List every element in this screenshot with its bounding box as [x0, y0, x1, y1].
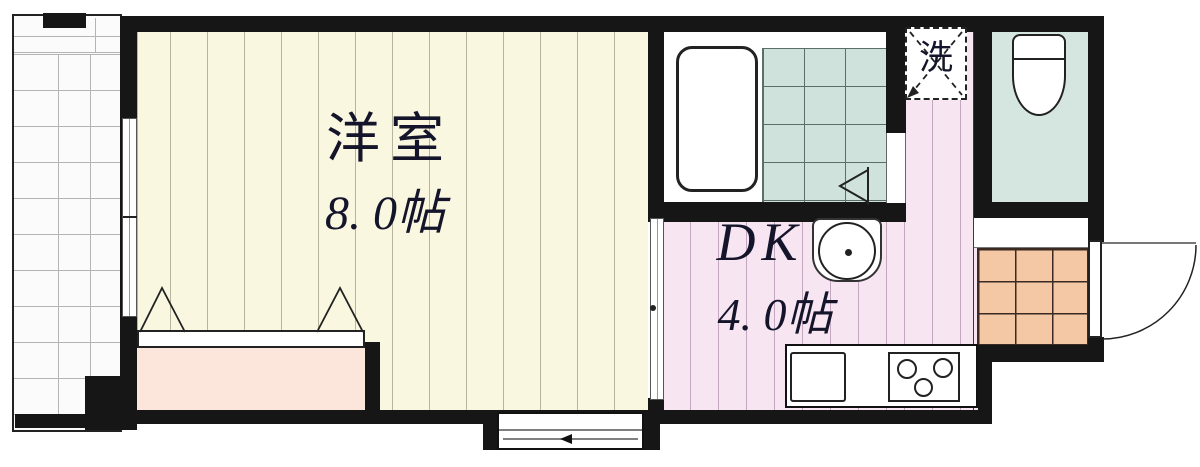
wall-closet-stub	[365, 342, 380, 412]
wall	[15, 414, 90, 428]
floorplan: 洋室 8. 0帖 DK 4. 0帖 洗	[0, 0, 1200, 467]
wall-room-divider	[648, 30, 664, 220]
stove	[888, 352, 960, 402]
burner-icon	[897, 359, 917, 379]
entrance-door-swing	[1102, 243, 1196, 339]
bathtub	[676, 46, 758, 192]
closet-front	[137, 330, 365, 348]
wall-genkan	[978, 345, 1104, 362]
wall-bathroom	[886, 16, 906, 133]
burner-icon	[933, 358, 953, 378]
western-room-label: 洋室	[300, 112, 480, 166]
bathroom-tile-area	[762, 48, 886, 202]
dk-label: DK	[700, 215, 820, 269]
wall-bottom	[120, 410, 497, 424]
south-window	[497, 412, 644, 450]
balcony-window	[122, 118, 137, 317]
kitchen-sink	[790, 352, 846, 402]
bathroom-door-opening	[886, 133, 906, 203]
balcony-edge-divider	[95, 18, 96, 52]
dk-size: 4. 0帖	[690, 292, 860, 338]
toilet-tank	[1012, 34, 1066, 60]
washer-space-label: 洗	[905, 42, 967, 76]
wall	[43, 13, 86, 28]
entrance-door-leaf	[1088, 240, 1102, 338]
balcony-grid-line	[58, 54, 59, 428]
balcony-grid-line	[90, 54, 91, 428]
sliding-door-track	[657, 219, 658, 399]
washbasin-drain	[845, 249, 852, 256]
western-room-size: 8. 0帖	[285, 190, 485, 238]
balcony-edge-line	[14, 52, 120, 53]
window-track	[129, 119, 130, 316]
burner-icon	[914, 378, 933, 397]
wall-toilet	[974, 202, 1104, 218]
wall-bottom	[648, 410, 992, 424]
wall-toilet	[974, 16, 992, 204]
wall-right	[1088, 16, 1104, 242]
balcony	[12, 14, 122, 432]
entrance-hall	[974, 218, 1088, 248]
sliding-door-dk	[650, 218, 664, 400]
genkan-tile-area	[977, 248, 1088, 345]
closet	[137, 348, 365, 410]
